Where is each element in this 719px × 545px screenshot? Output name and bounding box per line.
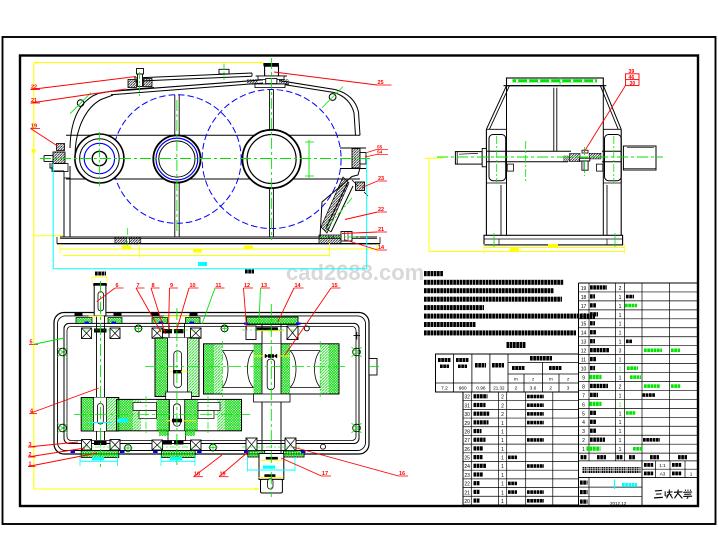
- svg-text:2: 2: [501, 395, 504, 401]
- svg-text:m: m: [514, 377, 518, 382]
- svg-text:20: 20: [464, 499, 470, 505]
- svg-text:11: 11: [581, 358, 586, 364]
- svg-text:1: 1: [501, 438, 504, 444]
- svg-text:1: 1: [582, 447, 585, 453]
- svg-text:1: 1: [690, 472, 693, 477]
- svg-text:22: 22: [464, 482, 470, 488]
- svg-text:1: 1: [501, 447, 504, 453]
- svg-text:3: 3: [619, 349, 622, 355]
- svg-text:4: 4: [582, 420, 585, 426]
- svg-text:A3: A3: [660, 472, 666, 477]
- svg-text:3: 3: [567, 386, 570, 392]
- svg-text:1: 1: [619, 447, 622, 453]
- svg-text:29: 29: [464, 421, 470, 427]
- svg-text:1: 1: [501, 429, 504, 435]
- svg-text:1: 1: [619, 304, 622, 310]
- svg-text:2: 2: [549, 386, 552, 392]
- svg-text:1: 1: [501, 482, 504, 488]
- svg-text:31: 31: [464, 403, 470, 409]
- svg-text:28: 28: [464, 429, 470, 435]
- svg-text:32: 32: [464, 395, 470, 401]
- svg-text:960: 960: [459, 386, 467, 392]
- svg-text:7: 7: [582, 393, 585, 399]
- svg-text:2: 2: [619, 286, 622, 292]
- svg-text:26: 26: [464, 447, 470, 453]
- svg-text:m: m: [549, 377, 553, 382]
- svg-text:19: 19: [581, 286, 587, 292]
- svg-text:2: 2: [582, 438, 585, 444]
- svg-text:12: 12: [581, 349, 587, 355]
- svg-text:1: 1: [501, 473, 504, 479]
- svg-text:1: 1: [619, 438, 622, 444]
- svg-text:6: 6: [582, 402, 585, 408]
- svg-text:2: 2: [515, 386, 518, 392]
- svg-text:8: 8: [582, 384, 585, 390]
- svg-text:21.32: 21.32: [493, 386, 505, 391]
- svg-text:10: 10: [581, 366, 587, 372]
- svg-text:13: 13: [581, 340, 587, 346]
- svg-text:18: 18: [581, 295, 587, 301]
- svg-text:30: 30: [464, 412, 470, 418]
- svg-text:14: 14: [581, 331, 587, 337]
- svg-text:9: 9: [582, 375, 585, 381]
- svg-text:2: 2: [501, 403, 504, 409]
- svg-text:1: 1: [619, 366, 622, 372]
- svg-text:16: 16: [581, 313, 587, 319]
- svg-text:1: 1: [619, 393, 622, 399]
- svg-text:1: 1: [619, 313, 622, 319]
- svg-text:25: 25: [464, 456, 470, 462]
- svg-text:27: 27: [464, 438, 470, 444]
- svg-text:15: 15: [581, 322, 587, 328]
- svg-text:1: 1: [619, 358, 622, 364]
- svg-text:24: 24: [464, 464, 470, 470]
- svg-text:1: 1: [501, 456, 504, 462]
- svg-text:2: 2: [619, 384, 622, 390]
- svg-text:1:1: 1:1: [659, 463, 666, 468]
- svg-text:1: 1: [501, 499, 504, 505]
- svg-text:7.2: 7.2: [441, 386, 448, 392]
- svg-text:1: 1: [619, 340, 622, 346]
- svg-text:1: 1: [619, 375, 622, 381]
- svg-text:cad2688.com: cad2688.com: [286, 260, 424, 285]
- svg-text:2012.12: 2012.12: [610, 501, 627, 506]
- svg-text:1: 1: [501, 464, 504, 470]
- svg-text:23: 23: [464, 473, 470, 479]
- svg-text:1: 1: [619, 295, 622, 301]
- svg-text:1: 1: [619, 420, 622, 426]
- svg-text:1: 1: [619, 331, 622, 337]
- svg-text:21: 21: [464, 490, 470, 496]
- svg-text:1: 1: [619, 402, 622, 408]
- svg-text:3.6: 3.6: [530, 386, 537, 392]
- svg-text:2: 2: [501, 412, 504, 418]
- svg-text:17: 17: [581, 304, 587, 310]
- svg-text:1: 1: [619, 411, 622, 417]
- svg-text:1: 1: [619, 429, 622, 435]
- svg-text:1: 1: [501, 421, 504, 427]
- svg-text:3: 3: [582, 429, 585, 435]
- svg-text:0.96: 0.96: [476, 386, 486, 392]
- svg-text:1: 1: [501, 490, 504, 496]
- svg-text:5: 5: [582, 411, 585, 417]
- svg-text:1: 1: [619, 322, 622, 328]
